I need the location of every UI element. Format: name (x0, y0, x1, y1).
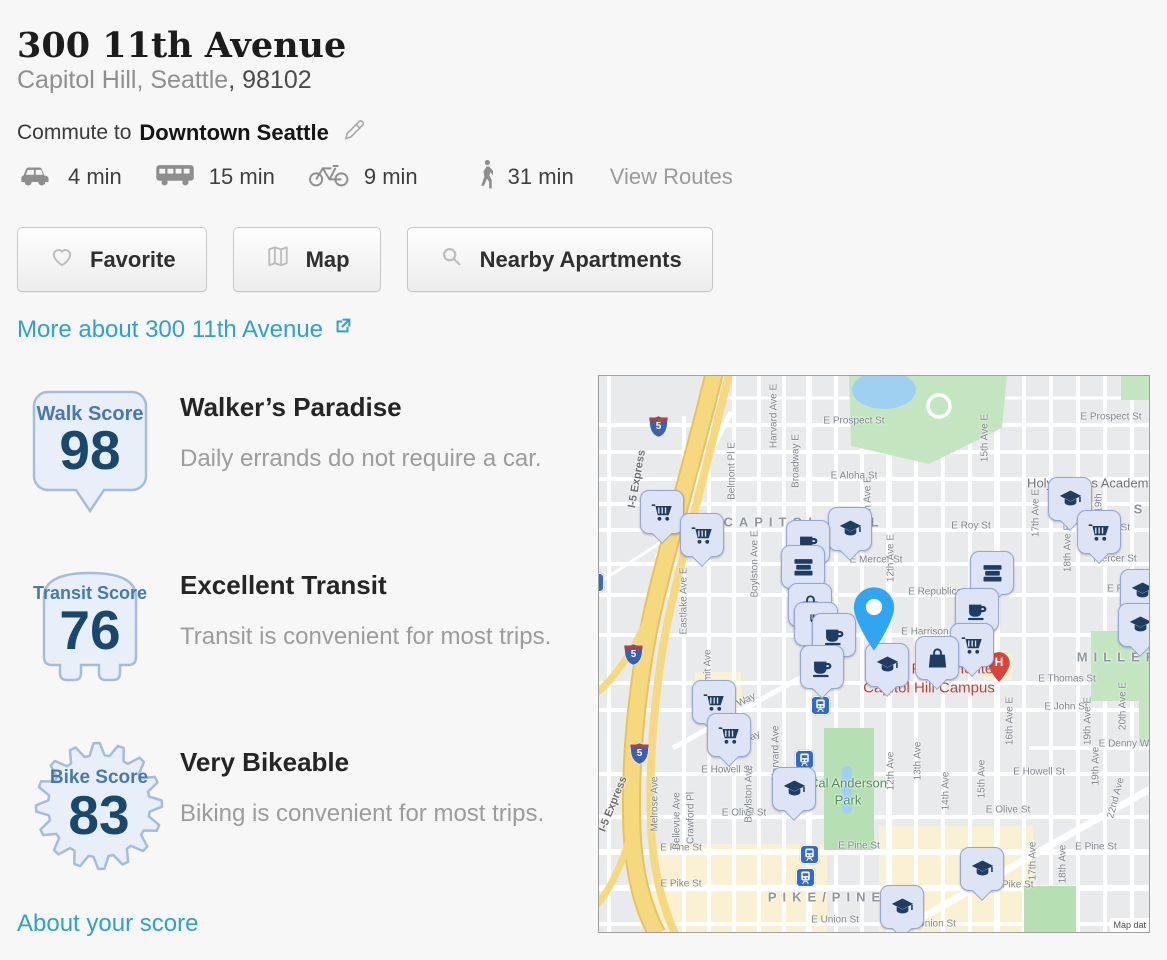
commute-prefix: Commute to (17, 121, 131, 145)
map-label: 20th Ave E (1118, 682, 1129, 730)
map-label: S (1134, 502, 1149, 517)
map-label: PIKE/PINE (768, 890, 886, 905)
more-about-link[interactable]: More about 300 11th Avenue (17, 315, 354, 344)
transit-score-heading: Excellent Transit (180, 570, 575, 601)
car-icon (17, 163, 55, 192)
walk-score-badge: Walk Score 98 (30, 390, 150, 514)
bike-score-heading: Very Bikeable (180, 747, 575, 778)
walk-score-heading: Walker’s Paradise (180, 392, 575, 423)
map-label: Cal Anderson (809, 776, 887, 791)
transit-score-description: Transit is convenient for most trips. (180, 613, 575, 660)
map-label: Boylston Ave (744, 765, 755, 823)
commute-line: Commute to Downtown Seattle (17, 117, 367, 149)
transit-station-icon[interactable] (811, 696, 830, 715)
transit-score-badge: Transit Score 76 (30, 563, 150, 683)
external-link-icon (332, 315, 354, 344)
map-label: 19th Ave E (1083, 697, 1094, 745)
commute-times-row: 4 min 15 min 9 min 31 min View Routes (17, 156, 733, 198)
transit-station-icon[interactable] (598, 573, 604, 592)
bag-pin[interactable] (915, 636, 959, 680)
page-title: 300 11th Avenue (17, 25, 346, 66)
map-label: 18th Ave (1058, 845, 1069, 884)
map-label: 12th Ave E (886, 534, 897, 582)
favorite-button[interactable]: Favorite (17, 227, 207, 292)
map-label: Park (835, 793, 862, 808)
map-label: Harvard Ave E (769, 384, 780, 448)
commute-time-car: 4 min (17, 163, 122, 192)
more-about-link-label: More about 300 11th Avenue (17, 316, 323, 344)
map-label: Bellevue Ave (672, 792, 683, 850)
neighborhood-map[interactable]: E Prospect StE Prospect StE Aloha StE Ro… (598, 375, 1150, 933)
interstate-5-shield: 5 (648, 415, 669, 438)
map-label: 16th Ave E (1005, 697, 1016, 745)
map-label: E Pine St (1075, 842, 1117, 853)
interstate-5-shield: 5 (623, 643, 644, 666)
map-label: E Howell St (1013, 767, 1065, 778)
cart-pin[interactable] (640, 490, 684, 534)
map-label: E Thomas St (1038, 674, 1096, 685)
cart-pin[interactable] (680, 513, 724, 557)
map-label: Crawford Pl (686, 792, 697, 844)
search-icon (438, 243, 466, 277)
map-label: Boylston Ave E (750, 530, 761, 597)
commute-time-value: 15 min (209, 164, 275, 190)
gradcap-pin[interactable] (880, 885, 924, 929)
gradcap-pin[interactable] (828, 507, 872, 551)
map-label: E Pine St (838, 841, 880, 852)
zip-code: , 98102 (228, 66, 311, 94)
commute-time-bus: 15 min (154, 162, 275, 193)
map-label: 15th Ave E (980, 414, 991, 462)
favorite-button-label: Favorite (90, 247, 176, 273)
map-button-label: Map (306, 247, 350, 273)
commute-time-bike: 9 min (307, 160, 418, 194)
transit-station-icon[interactable] (800, 845, 819, 864)
map-label: 17th Ave (1028, 842, 1039, 881)
interstate-5-shield: 5 (629, 742, 650, 765)
commute-time-value: 9 min (364, 164, 418, 190)
map-overlay-layer: E Prospect StE Prospect StE Aloha StE Ro… (599, 376, 1149, 932)
map-icon (264, 243, 292, 277)
map-label: Eastlake Ave E (679, 567, 690, 634)
map-label: Belmont Pl E (727, 442, 738, 500)
bike-icon (307, 160, 351, 194)
bike-score-badge: Bike Score 83 (24, 731, 174, 881)
map-label: 19th Ave (1091, 747, 1102, 786)
map-label: Melrose Ave (650, 777, 661, 832)
gradcap-pin[interactable] (1118, 603, 1150, 647)
commute-time-walk: 31 min (478, 159, 574, 195)
walk-icon (478, 159, 495, 195)
bus-icon (154, 162, 196, 193)
map-label: E Pike St (660, 879, 701, 890)
map-label: 18th Ave E (1063, 524, 1074, 572)
map-button[interactable]: Map (233, 227, 381, 292)
bike-score-value: 83 (24, 788, 174, 843)
pencil-icon[interactable] (341, 117, 367, 149)
main-location-pin[interactable] (851, 585, 897, 658)
map-label: E Olive St (986, 805, 1030, 816)
action-buttons-row: Favorite Map Nearby Apartments (17, 227, 713, 292)
gradcap-pin[interactable] (772, 767, 816, 811)
map-label: E Denny Way (1099, 739, 1150, 750)
bike-score-description: Biking is convenient for most trips. (180, 790, 575, 837)
address-line: Capitol Hill, Seattle, 98102 (17, 66, 312, 95)
transit-station-icon[interactable] (796, 868, 815, 887)
transit-score-value: 76 (30, 603, 150, 658)
map-label: E Prospect St (823, 416, 884, 427)
map-label: 22nd Ave (1105, 777, 1126, 820)
map-label: E Prospect St (1080, 412, 1141, 423)
map-label: E Roy St (951, 521, 990, 532)
map-label: I-5 Express (598, 775, 630, 834)
map-attribution: Map dat (1110, 918, 1149, 932)
walk-score-description: Daily errands do not require a car. (180, 435, 575, 482)
neighborhood-city: Capitol Hill, Seattle (17, 66, 228, 94)
coffee-pin[interactable] (800, 645, 844, 689)
nearby-apartments-button-label: Nearby Apartments (480, 247, 682, 273)
map-label: 14th Ave (941, 772, 952, 811)
map-label: 15th Ave (977, 760, 988, 799)
about-your-score-link[interactable]: About your score (17, 910, 198, 938)
map-label: 13th Ave (913, 742, 924, 781)
heart-icon (48, 243, 76, 277)
cart-pin[interactable] (707, 713, 751, 757)
commute-time-value: 31 min (508, 164, 574, 190)
map-label: 12th Ave (886, 752, 897, 791)
nearby-apartments-button[interactable]: Nearby Apartments (407, 227, 713, 292)
map-label: E John St (1044, 702, 1087, 713)
map-label: Broadway E (791, 434, 802, 488)
commute-destination: Downtown Seattle (139, 120, 328, 146)
view-routes-link[interactable]: View Routes (610, 164, 733, 190)
gradcap-pin[interactable] (960, 847, 1004, 891)
walk-score-value: 98 (30, 423, 150, 478)
map-label: E Union St (811, 915, 859, 926)
cart-pin[interactable] (1077, 510, 1121, 554)
map-label: 17th Ave E (1031, 489, 1042, 537)
commute-time-value: 4 min (68, 164, 122, 190)
